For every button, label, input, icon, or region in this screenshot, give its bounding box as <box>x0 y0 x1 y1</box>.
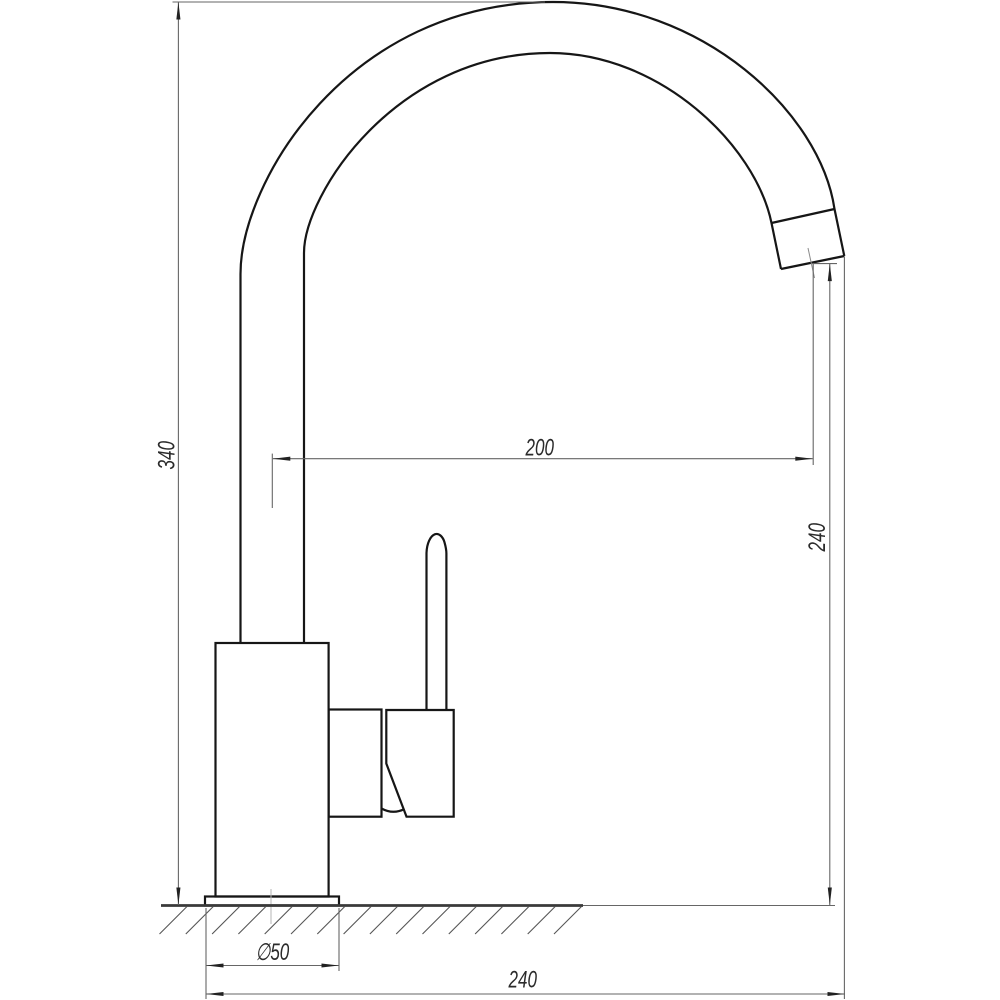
svg-text:∅50: ∅50 <box>256 939 290 966</box>
svg-text:200: 200 <box>525 435 555 462</box>
svg-text:240: 240 <box>804 523 831 553</box>
svg-text:240: 240 <box>508 967 538 994</box>
svg-text:340: 340 <box>154 441 181 470</box>
